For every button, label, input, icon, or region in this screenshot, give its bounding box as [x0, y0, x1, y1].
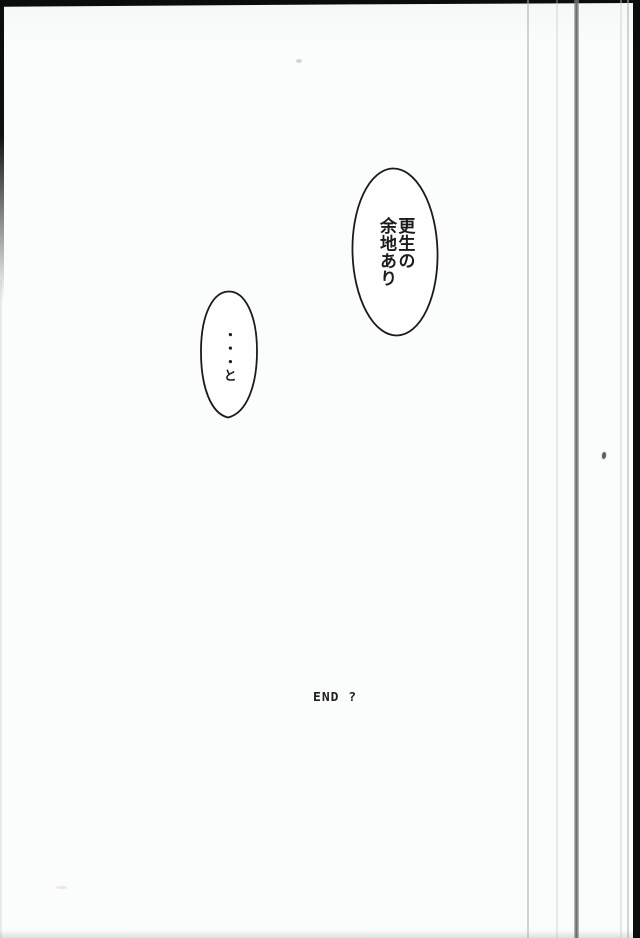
scan-speck	[296, 59, 302, 63]
scan-speck	[602, 452, 607, 459]
speech-bubble-left: ・・・と	[196, 289, 262, 421]
scan-speck	[56, 886, 67, 889]
scan-border-bottom-smudge	[0, 930, 633, 938]
page-edge-line	[627, 0, 629, 938]
end-label: END ?	[313, 690, 357, 705]
scan-border-left-faint	[0, 280, 2, 938]
page-edge-line-dark	[574, 0, 579, 938]
speech-bubble-right: 更生の 余地あり	[350, 166, 440, 338]
page-edge-line	[620, 0, 622, 938]
scan-border-left	[0, 0, 4, 300]
speech-bubble-text: ・・・と	[196, 289, 262, 421]
manga-scan-page: 更生の 余地あり ・・・と END ?	[0, 0, 640, 938]
speech-bubble-text: 更生の 余地あり	[350, 166, 440, 338]
scan-border-top	[0, 0, 640, 7]
scan-border-right	[633, 0, 640, 938]
page-edge-line	[556, 0, 558, 938]
page-edge-line	[527, 0, 529, 938]
